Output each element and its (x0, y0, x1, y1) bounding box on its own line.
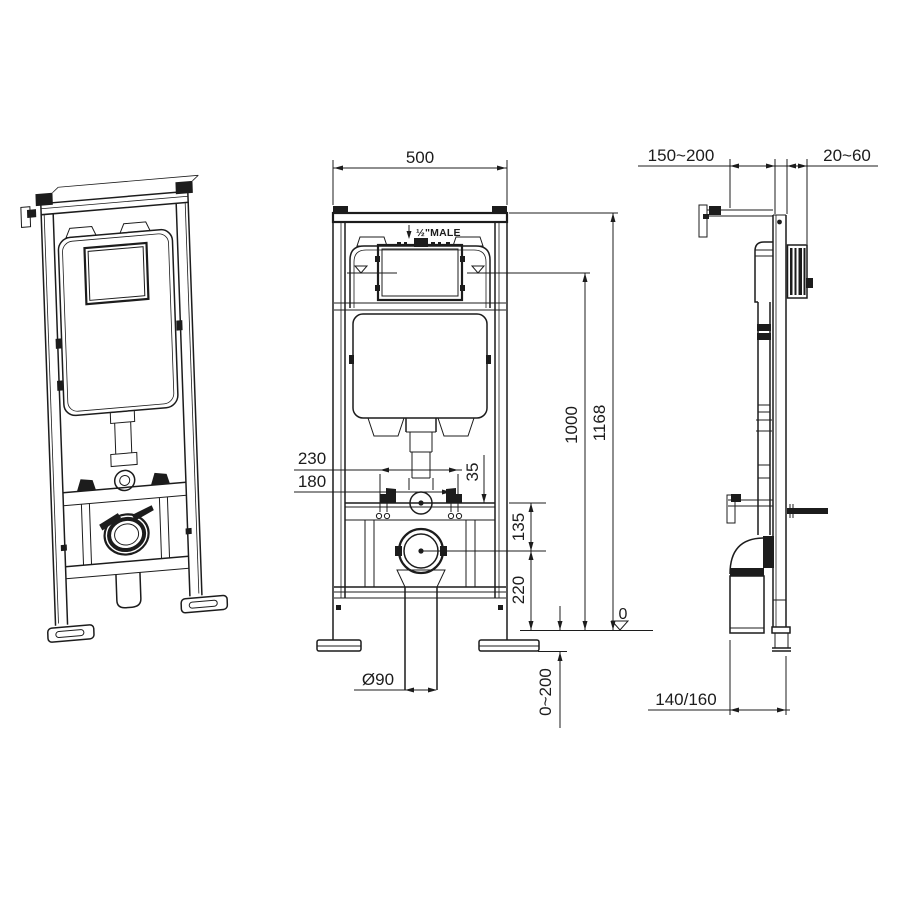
outlet-pipe (405, 587, 437, 690)
left-foot-3d (48, 625, 94, 643)
right-foot-3d (181, 595, 227, 613)
dim-flush-bend-height: 135 (509, 513, 528, 541)
dim-front-width: 500 (406, 148, 434, 167)
cistern-side (755, 242, 773, 302)
drawing-page: ½"MALE (0, 0, 900, 900)
outlet-pipe-3d (116, 572, 141, 608)
perspective-view (20, 174, 228, 643)
flush-pipe (406, 418, 436, 432)
dim-foot-adjust-range: 0~200 (536, 668, 555, 716)
dim-drain-height: 220 (509, 576, 528, 604)
dim-bolt-spacing-outer: 230 (298, 449, 326, 468)
frame-top-bar (333, 213, 507, 222)
access-panel-3d (84, 243, 148, 304)
dim-frame-height: 1168 (590, 405, 609, 442)
inlet-label: ½"MALE (416, 227, 461, 239)
wall-bracket (699, 205, 707, 237)
cistern-3d (58, 229, 178, 417)
dim-wall-offset-range: 150~200 (648, 146, 715, 165)
dim-bolt-spacing-inner: 180 (298, 472, 326, 491)
dim-offset-small: 35 (463, 463, 482, 482)
dim-drain-offset: 140/160 (655, 690, 716, 709)
technical-drawing-canvas: ½"MALE (0, 0, 900, 900)
front-view: ½"MALE (317, 206, 590, 690)
cistern-body (353, 314, 487, 418)
dim-datum-zero: 0 (619, 606, 628, 623)
dim-plate-depth-range: 20~60 (823, 146, 871, 165)
frame-right-rail (495, 222, 507, 640)
dim-cistern-water-height: 1000 (562, 406, 581, 444)
frame-left-rail (333, 222, 345, 640)
side-rail (773, 215, 786, 627)
front-view-dimensions: 500 230 180 35 135 220 1000 (294, 148, 653, 728)
dim-outlet-diameter: Ø90 (362, 670, 394, 689)
side-foot (772, 627, 790, 633)
side-view (699, 205, 828, 651)
flush-pipe-3d (110, 410, 134, 423)
